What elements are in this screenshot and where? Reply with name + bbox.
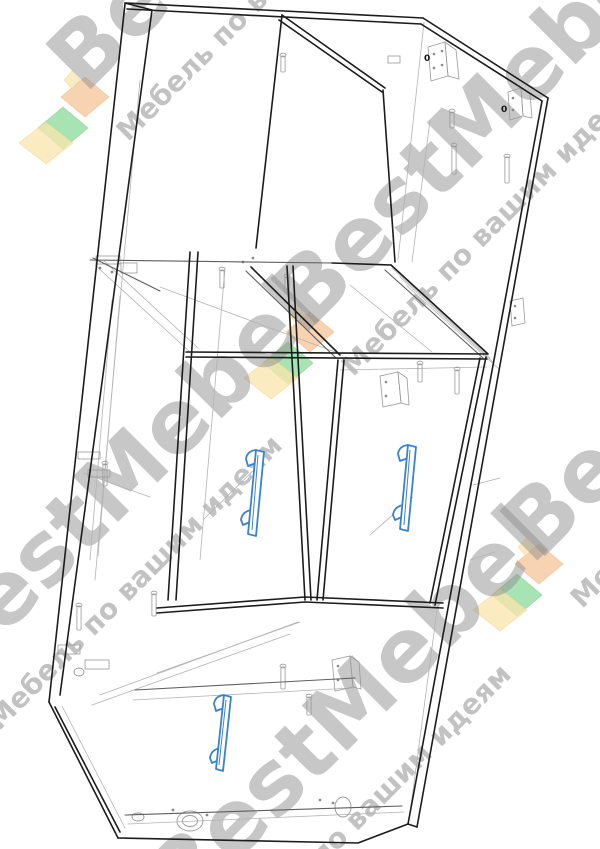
- dowel-pin: [152, 594, 156, 616]
- screw-hole-dot: [433, 53, 436, 56]
- hinge-bracket: [380, 372, 401, 407]
- watermark-brand-text: BestMebel: [0, 257, 339, 698]
- fitting-dot: [252, 257, 255, 260]
- screw-hole-dot: [441, 50, 444, 53]
- product-drawing: BestMebelМебель по вашим идеямBestMebelМ…: [0, 0, 600, 849]
- screw-hole-dot: [514, 317, 517, 320]
- dowel-pin: [455, 370, 459, 394]
- fitting-block: [388, 56, 400, 63]
- fitting-dot: [172, 809, 175, 812]
- fitting-dot: [111, 271, 114, 274]
- dowel-pin: [418, 364, 422, 382]
- screw-hole-dot: [514, 305, 517, 308]
- dowel-pin: [281, 667, 285, 689]
- door-handle: [393, 445, 416, 531]
- fitting-label: 0: [501, 105, 507, 115]
- fitting-dot: [206, 814, 209, 817]
- screw-hole-dot: [512, 109, 515, 112]
- hinge-bracket: [428, 42, 448, 81]
- furniture-wireframe-drawing: BestMebelМебель по вашим идеямBestMebelМ…: [0, 0, 600, 849]
- dowel-pin: [281, 56, 285, 72]
- fitting-dot: [319, 799, 322, 802]
- screw-hole-dot: [385, 395, 388, 398]
- fitting-dot: [99, 267, 102, 270]
- watermark-layer: BestMebelМебель по вашим идеямBestMebelМ…: [0, 0, 600, 849]
- hinge-bracket: [510, 298, 525, 326]
- screw-hole-dot: [337, 665, 340, 668]
- hinge-bracket: [398, 372, 409, 405]
- screw-hole-dot: [433, 67, 436, 70]
- screw-hole-dot: [512, 97, 515, 100]
- fitting-label: 0: [424, 54, 430, 64]
- foot-circle: [74, 668, 84, 676]
- screw-hole-dot: [385, 381, 388, 384]
- fitting-dot: [332, 802, 335, 805]
- fitting-block: [85, 660, 109, 669]
- screw-hole-dot: [441, 64, 444, 67]
